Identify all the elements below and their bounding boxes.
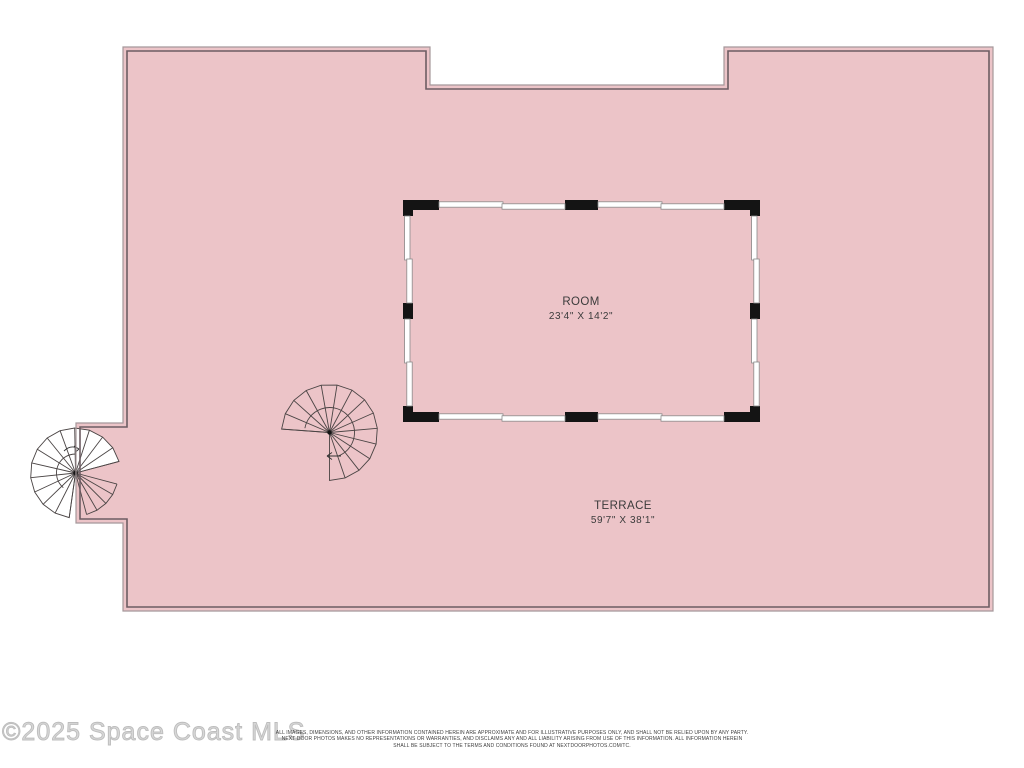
- disclaimer: ALL IMAGES, DIMENSIONS, AND OTHER INFORM…: [262, 730, 762, 749]
- mls-watermark: ©2025 Space Coast MLS: [2, 718, 305, 747]
- disclaimer-line: SHALL BE SUBJECT TO THE TERMS AND CONDIT…: [262, 743, 762, 749]
- room-dimensions: 23'4" X 14'2": [481, 311, 681, 322]
- terrace-dimensions: 59'7" X 38'1": [523, 515, 723, 526]
- disclaimer-line: NEXT DOOR PHOTOS MAKES NO REPRESENTATION…: [262, 736, 762, 742]
- floor-plan-svg: [0, 0, 1024, 768]
- terrace-label: TERRACE: [523, 500, 723, 512]
- terrace-area: [76, 47, 993, 611]
- room-label: ROOM: [481, 296, 681, 308]
